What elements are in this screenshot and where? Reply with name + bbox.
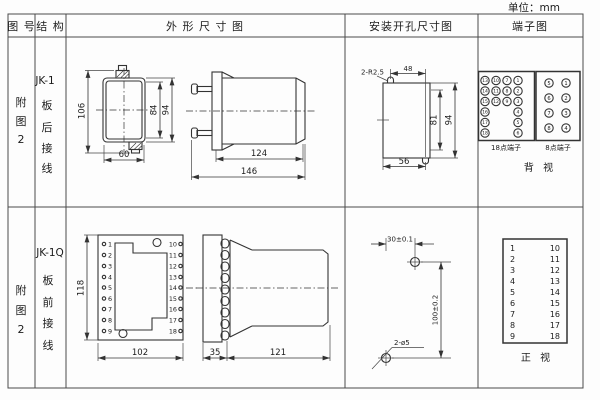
row1-figure-char: 图 bbox=[16, 115, 27, 128]
row1-mounting-drawing: 48 2-R2.5 81 94 56 bbox=[361, 65, 458, 170]
terminal-number: 3 bbox=[517, 99, 520, 105]
terminal-list: 110 211 312 413 514 615 716 817 918 bbox=[510, 244, 560, 341]
terminal-number: 12 bbox=[550, 266, 560, 275]
terminal-number: 17 bbox=[550, 321, 560, 330]
terminal-number: 7 bbox=[510, 310, 515, 319]
terminal-number: 18 bbox=[482, 131, 488, 137]
plate-terminal-number: 4 bbox=[108, 273, 112, 281]
dim-inner-height-81: 81 bbox=[430, 115, 440, 126]
dim-bottom-span-56: 56 bbox=[399, 157, 410, 167]
row1-structure-char: 线 bbox=[42, 161, 53, 175]
terminal-18-label: 18点端子 bbox=[491, 143, 521, 152]
row2-figure-cell: 附 图 2 bbox=[16, 283, 27, 336]
terminal-number: 2 bbox=[510, 255, 515, 264]
row2-figure-char: 图 bbox=[16, 304, 27, 317]
dim-slot-span-48: 48 bbox=[404, 65, 413, 73]
plate-terminal-number: 15 bbox=[169, 295, 177, 303]
terminal-circles-8: 5 1 6 2 7 3 8 4 bbox=[545, 79, 570, 132]
row1-structure-char: 后 bbox=[42, 121, 53, 134]
dim-inner-height-84: 84 bbox=[150, 105, 160, 116]
row2-mounting-drawing: 30±0.1 100±0.2 2-ø5 bbox=[371, 236, 451, 370]
row1-terminal-8pt: 5 1 6 2 7 3 8 4 8点端子 bbox=[536, 72, 580, 153]
terminal-number: 11 bbox=[493, 89, 499, 95]
dim-height-118: 118 bbox=[77, 280, 87, 296]
terminal-number: 6 bbox=[547, 96, 550, 102]
row1-figure-cell: 附 图 2 bbox=[16, 95, 27, 146]
terminal-number: 10 bbox=[550, 244, 560, 253]
terminal-number: 18 bbox=[550, 332, 560, 341]
row2-model-label: JK-1Q bbox=[35, 247, 64, 259]
row1-outline-front-view: 106 84 94 60 bbox=[78, 66, 176, 164]
plate-terminal-number: 10 bbox=[169, 240, 177, 248]
datasheet-drawing: 单位：mm 图 号 结 构 外 形 尺 寸 图 安装开孔尺寸图 端子图 附 图 … bbox=[0, 0, 600, 400]
row2-figure-char: 2 bbox=[18, 323, 25, 336]
plate-terminal-number: 6 bbox=[108, 295, 112, 303]
plate-terminal-number: 11 bbox=[169, 251, 177, 259]
row1-view-label: 背 视 bbox=[524, 161, 556, 174]
row1-outline-side-view: 124 146 bbox=[186, 72, 315, 180]
mounting-screw bbox=[192, 128, 213, 138]
header-terminal: 端子图 bbox=[512, 20, 548, 33]
terminal-number: 3 bbox=[510, 266, 515, 275]
row2-outline-front-view: 1 2 3 4 5 6 7 8 9 10 11 12 13 14 15 16 1… bbox=[77, 235, 198, 361]
dim-outer-height-94: 94 bbox=[162, 105, 172, 116]
row2-structure-char: 接 bbox=[43, 317, 54, 330]
terminal-number: 13 bbox=[550, 277, 560, 286]
dim-height-106: 106 bbox=[78, 103, 88, 119]
terminal-number: 11 bbox=[550, 255, 560, 264]
header-structure: 结 构 bbox=[36, 19, 65, 33]
terminal-number: 9 bbox=[506, 99, 509, 105]
terminal-number: 5 bbox=[547, 81, 550, 87]
dim-plate-depth-35: 35 bbox=[210, 348, 221, 358]
terminal-number: 1 bbox=[564, 81, 567, 87]
plate-terminal-number: 1 bbox=[108, 240, 112, 248]
terminal-number: 17 bbox=[482, 120, 488, 126]
row1-structure-char: 接 bbox=[42, 142, 53, 155]
terminal-number: 13 bbox=[482, 78, 488, 84]
plate-terminal-number: 14 bbox=[169, 284, 177, 292]
terminal-number: 10 bbox=[493, 78, 499, 84]
row2-terminal-diagram: 110 211 312 413 514 615 716 817 918 正 视 bbox=[503, 239, 567, 364]
plate-terminal-number: 2 bbox=[108, 251, 112, 259]
dim-hole-spacing-v: 100±0.2 bbox=[432, 295, 440, 325]
plate-terminal-number: 3 bbox=[108, 262, 112, 270]
terminal-number: 1 bbox=[517, 78, 520, 84]
terminal-number: 7 bbox=[547, 111, 550, 117]
mounting-screw bbox=[192, 84, 213, 94]
plate-terminals-right: 10 11 12 13 14 15 16 17 18 bbox=[169, 240, 182, 335]
header-figure: 图 号 bbox=[7, 20, 36, 33]
terminal-number: 8 bbox=[510, 321, 515, 330]
row1-figure-char: 附 bbox=[16, 95, 27, 109]
hole-diameter-label: 2-ø5 bbox=[394, 339, 410, 347]
row2-structure-char: 板 bbox=[43, 273, 54, 287]
terminal-number: 4 bbox=[517, 110, 520, 116]
terminal-number: 15 bbox=[550, 299, 560, 308]
row1-structure-cell: JK-1 板 后 接 线 bbox=[34, 75, 54, 175]
terminal-number: 14 bbox=[482, 89, 488, 95]
row2-figure-char: 附 bbox=[16, 283, 27, 297]
dim-width-102: 102 bbox=[132, 348, 148, 358]
dim-body-length-121: 121 bbox=[270, 348, 286, 358]
plate-terminal-number: 7 bbox=[108, 305, 112, 313]
terminal-number: 6 bbox=[510, 299, 515, 308]
terminal-number: 1 bbox=[510, 244, 515, 253]
terminal-number: 8 bbox=[547, 126, 550, 132]
terminal-number: 3 bbox=[564, 111, 567, 117]
dim-width-60: 60 bbox=[119, 150, 130, 160]
terminal-number: 12 bbox=[493, 99, 499, 105]
plate-terminal-number: 9 bbox=[108, 327, 112, 335]
terminal-number: 7 bbox=[506, 78, 509, 84]
plate-terminal-number: 8 bbox=[108, 316, 112, 324]
terminal-8-label: 8点端子 bbox=[545, 143, 570, 152]
plate-terminal-number: 5 bbox=[108, 284, 112, 292]
dim-hole-spacing-h: 30±0.1 bbox=[387, 236, 413, 244]
dim-body-length-124: 124 bbox=[251, 149, 267, 159]
terminal-number: 2 bbox=[517, 89, 520, 95]
plate-terminals-left: 1 2 3 4 5 6 7 8 9 bbox=[102, 240, 112, 335]
dim-outer-height-94: 94 bbox=[445, 115, 455, 126]
row2-structure-char: 线 bbox=[43, 338, 54, 352]
row1-model-label: JK-1 bbox=[34, 75, 54, 87]
terminal-number: 15 bbox=[482, 99, 488, 105]
terminal-number: 5 bbox=[510, 288, 515, 297]
dim-total-length-146: 146 bbox=[241, 167, 257, 177]
terminal-number: 14 bbox=[550, 288, 560, 297]
terminal-number: 9 bbox=[510, 332, 515, 341]
slot-radius-label: 2-R2.5 bbox=[361, 69, 384, 77]
terminal-number: 2 bbox=[564, 96, 567, 102]
header-mounting: 安装开孔尺寸图 bbox=[369, 19, 453, 33]
row1-terminal-18pt: 13 10 7 1 14 11 8 2 15 12 9 3 16 4 17 5 … bbox=[479, 72, 535, 153]
header-outline: 外 形 尺 寸 图 bbox=[166, 19, 244, 33]
row2-structure-cell: JK-1Q 板 前 接 线 bbox=[35, 247, 64, 352]
terminal-number: 16 bbox=[550, 310, 560, 319]
terminal-number: 16 bbox=[482, 110, 488, 116]
table-header-row: 图 号 结 构 外 形 尺 寸 图 安装开孔尺寸图 端子图 bbox=[7, 19, 548, 33]
terminal-tab-top bbox=[116, 66, 129, 79]
mounting-hole bbox=[119, 330, 127, 338]
plate-terminal-number: 17 bbox=[169, 316, 177, 324]
row2-structure-char: 前 bbox=[43, 295, 54, 309]
datasheet-page: 单位：mm 图 号 结 构 外 形 尺 寸 图 安装开孔尺寸图 端子图 附 图 … bbox=[0, 0, 600, 400]
row2-view-label: 正 视 bbox=[521, 351, 553, 364]
plate-terminal-number: 16 bbox=[169, 305, 177, 313]
plate-terminal-number: 12 bbox=[169, 262, 177, 270]
row1-figure-char: 2 bbox=[18, 133, 25, 146]
terminal-number: 8 bbox=[506, 89, 509, 95]
terminal-tab-bottom bbox=[129, 142, 142, 153]
row2-outline-side-view: 35 121 bbox=[196, 235, 338, 361]
mounting-hole bbox=[153, 239, 161, 247]
terminal-number: 4 bbox=[510, 277, 515, 286]
terminal-number: 6 bbox=[517, 131, 520, 137]
unit-label: 单位：mm bbox=[508, 1, 560, 14]
row1-structure-char: 板 bbox=[42, 98, 53, 112]
terminal-number: 4 bbox=[564, 126, 568, 132]
table-grid bbox=[8, 14, 583, 388]
plate-terminal-number: 13 bbox=[169, 273, 177, 281]
plate-terminal-number: 18 bbox=[169, 327, 177, 335]
terminal-number: 5 bbox=[517, 120, 520, 126]
terminal-circles-18: 13 10 7 1 14 11 8 2 15 12 9 3 16 4 17 5 … bbox=[481, 76, 522, 137]
